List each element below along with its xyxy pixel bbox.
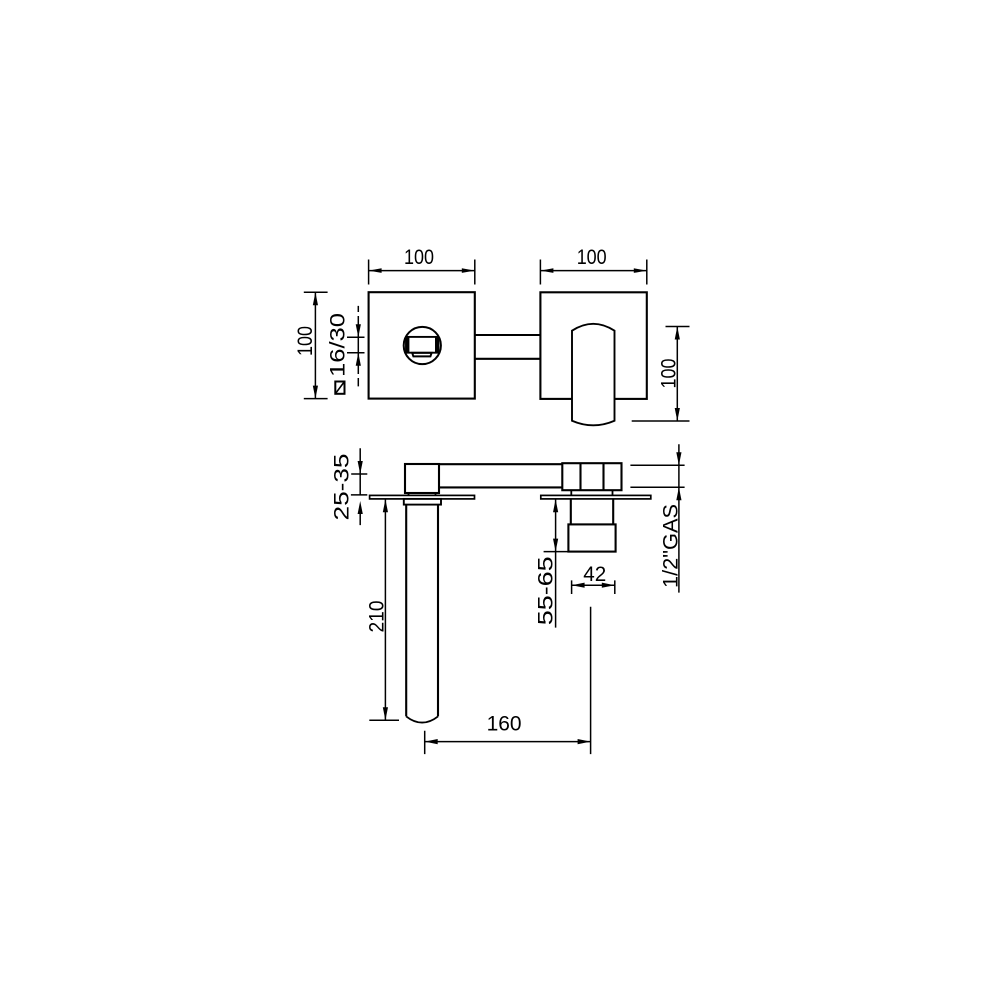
svg-text:100: 100 [577, 245, 607, 269]
svg-text:160: 160 [487, 712, 522, 736]
svg-text:1/2"GAS: 1/2"GAS [659, 504, 683, 588]
svg-text:100: 100 [293, 326, 317, 356]
svg-text:25-35: 25-35 [330, 454, 354, 521]
svg-text:55-65: 55-65 [533, 556, 557, 625]
svg-text:100: 100 [656, 358, 680, 388]
svg-text:100: 100 [404, 245, 434, 269]
svg-text:210: 210 [364, 600, 388, 632]
svg-text:42: 42 [583, 562, 606, 586]
svg-text:16/30: 16/30 [325, 313, 349, 377]
